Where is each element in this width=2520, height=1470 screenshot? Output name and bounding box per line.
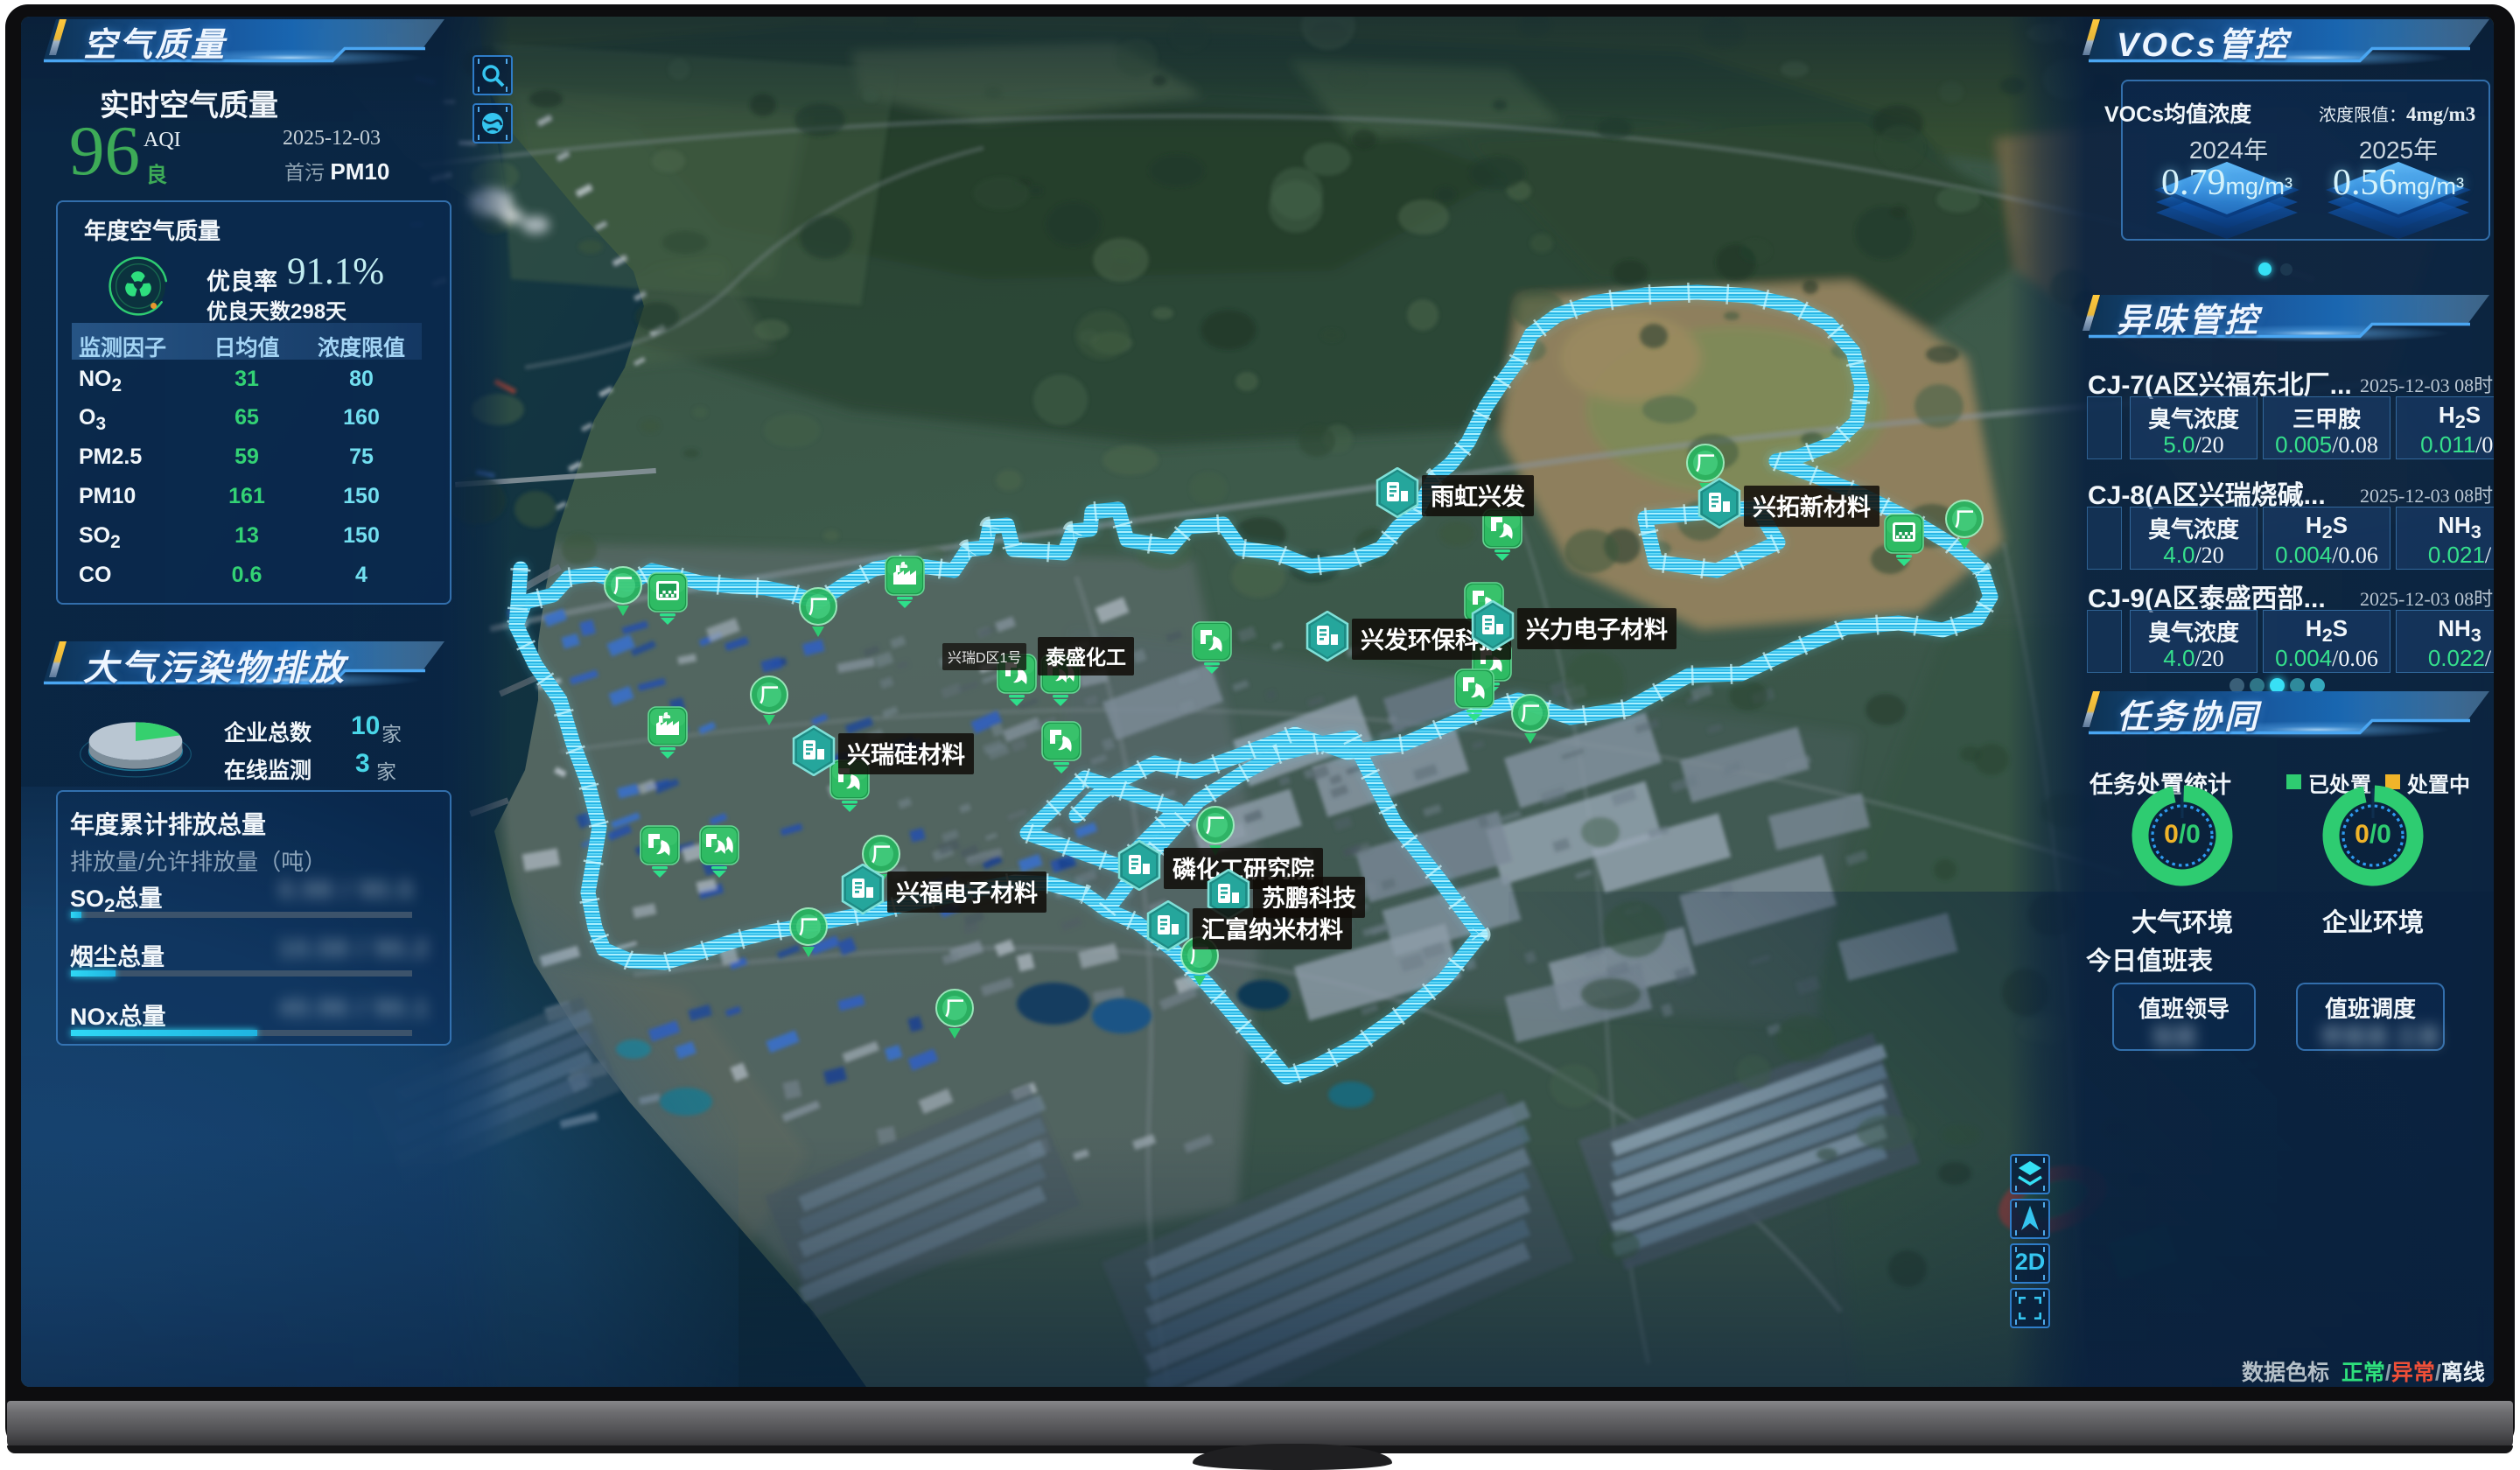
svg-text:厂: 厂 xyxy=(613,575,633,597)
svg-text:厂: 厂 xyxy=(1521,703,1540,724)
svg-text:厂: 厂 xyxy=(759,684,779,706)
svg-text:厂: 厂 xyxy=(871,843,891,865)
svg-text:厂: 厂 xyxy=(945,997,964,1019)
svg-text:厂: 厂 xyxy=(808,596,828,618)
svg-text:厂: 厂 xyxy=(799,916,818,938)
svg-text:厂: 厂 xyxy=(1955,508,1974,530)
svg-text:厂: 厂 xyxy=(1206,815,1225,836)
svg-text:厂: 厂 xyxy=(1696,452,1715,474)
